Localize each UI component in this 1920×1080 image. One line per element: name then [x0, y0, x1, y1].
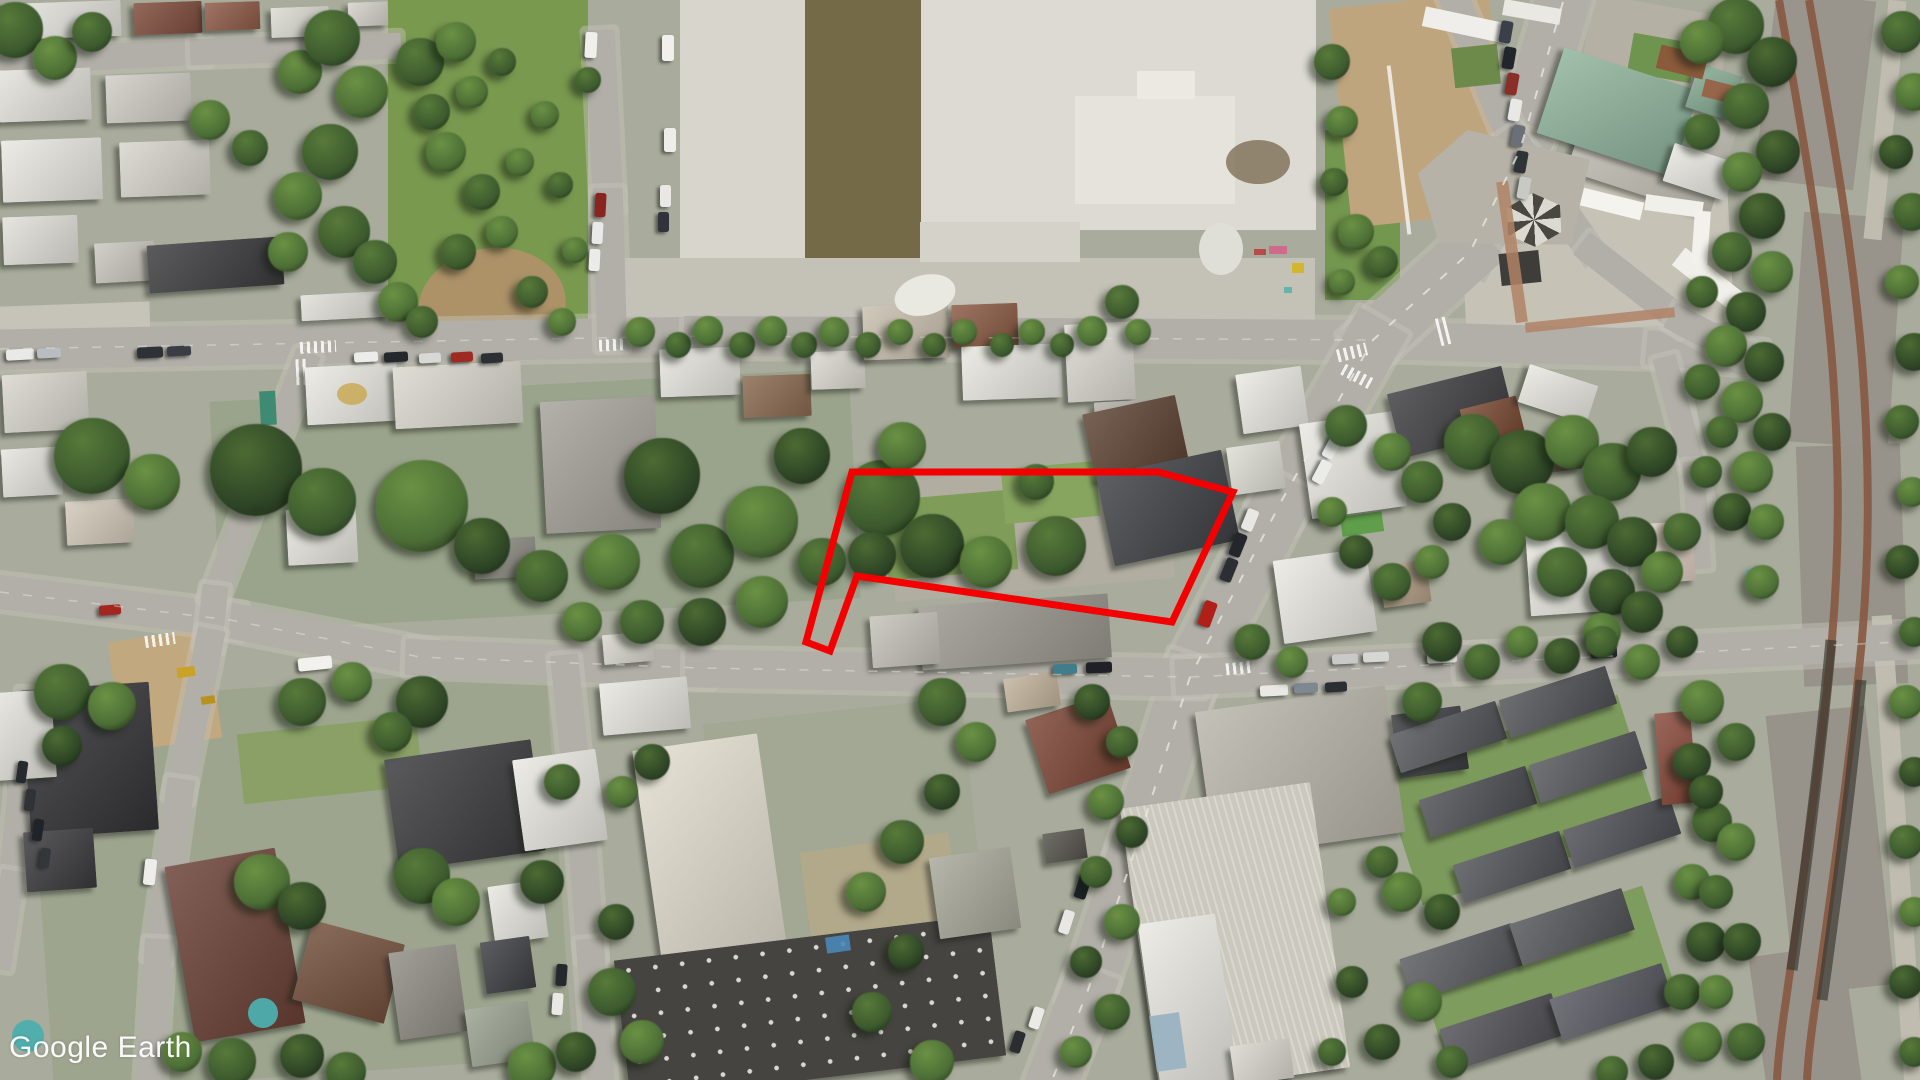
- watermark-text: Google Earth: [9, 1031, 192, 1064]
- parcel-boundary-overlay: [0, 0, 1920, 1080]
- google-earth-viewport[interactable]: Google Earth: [0, 0, 1920, 1080]
- google-earth-watermark: Google Earth: [9, 1031, 192, 1065]
- parcel-outline-polygon: [806, 472, 1233, 651]
